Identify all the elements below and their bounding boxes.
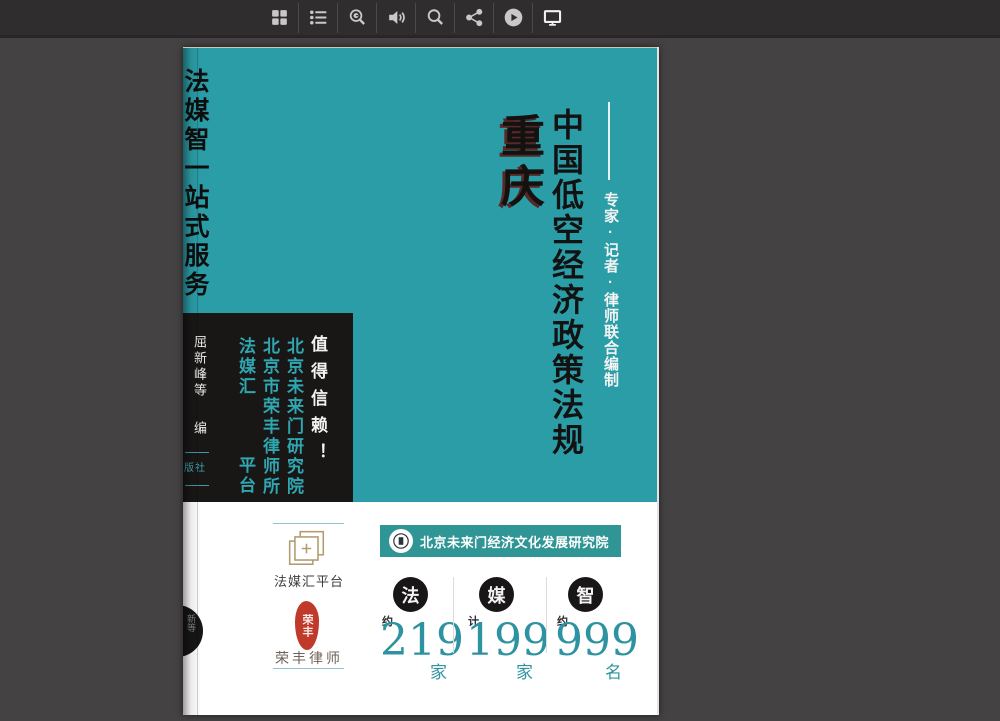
platform-logo-icon xyxy=(286,528,328,570)
stat-badge-media: 媒 xyxy=(479,577,514,612)
cover-black-box: 屈新峰等 编 版社 法媒汇 平台 北京市荣丰律师所 北京未来门研究院 值得信赖！ xyxy=(183,313,353,502)
org-platform-top: 法媒汇 xyxy=(233,337,258,397)
toolbar-button-group xyxy=(260,3,571,33)
stat-unit: 名 xyxy=(605,658,622,683)
stat-divider xyxy=(546,577,547,653)
play-icon[interactable] xyxy=(494,3,532,33)
lawfirm-label: 荣丰律师 xyxy=(265,648,353,668)
stat-block-media: 媒 计 199 家 xyxy=(466,577,539,677)
stat-value: 219 xyxy=(380,619,464,663)
stat-badge-text: 媒 xyxy=(488,582,506,608)
grid-icon[interactable] xyxy=(260,3,298,33)
org-lawfirm: 北京市荣丰律师所 xyxy=(257,337,282,497)
book-page[interactable]: 法媒智一站式服务 重庆 中国低空经济政策法规 专家·记者·律师联合编制 屈新峰等… xyxy=(183,47,659,715)
cover-editors-note: 专家·记者·律师联合编制 xyxy=(600,192,621,388)
publisher-partial-text: 版社 xyxy=(184,459,206,474)
search-history-icon[interactable] xyxy=(338,3,376,33)
toc-list-icon[interactable] xyxy=(299,3,337,33)
cover-left-slogan: 法媒智一站式服务 xyxy=(183,68,213,300)
edge-badge-text: 新等 xyxy=(185,614,198,632)
org-institute: 北京未来门研究院 xyxy=(281,337,306,497)
cover-region-label: 重庆 xyxy=(486,113,550,213)
authors-text: 屈新峰等 xyxy=(190,335,209,399)
institute-logo-icon xyxy=(389,529,413,553)
institute-banner: 北京未来门经济文化发展研究院 xyxy=(380,525,621,557)
stat-block-law: 法 约 219 家 xyxy=(380,577,453,677)
editor-label: 编 xyxy=(190,421,209,434)
institute-banner-text: 北京未来门经济文化发展研究院 xyxy=(420,532,609,551)
tagline-text: 值得信赖！ xyxy=(305,335,330,470)
monitor-icon[interactable] xyxy=(533,3,571,33)
search-icon[interactable] xyxy=(416,3,454,33)
viewer-toolbar xyxy=(0,0,1000,38)
edge-circle-badge: 新等 xyxy=(183,605,203,657)
cover-main-title: 中国低空经济政策法规 xyxy=(543,108,589,458)
lawfirm-seal-icon: 荣丰 xyxy=(295,601,319,650)
org-platform-bottom: 平台 xyxy=(233,456,258,496)
publisher-rule-top xyxy=(185,452,209,453)
share-icon[interactable] xyxy=(455,3,493,33)
book-cover: 法媒智一站式服务 重庆 中国低空经济政策法规 专家·记者·律师联合编制 屈新峰等… xyxy=(183,47,659,502)
seal-text: 荣丰 xyxy=(299,614,315,638)
volume-icon[interactable] xyxy=(377,3,415,33)
editors-divider-line xyxy=(608,102,610,180)
stat-badge-text: 智 xyxy=(577,582,595,608)
stat-value: 999 xyxy=(555,619,639,663)
stat-unit: 家 xyxy=(516,658,533,683)
stat-divider xyxy=(453,577,454,653)
stat-block-智: 智 约 999 名 xyxy=(555,577,628,677)
stat-badge-smart: 智 xyxy=(568,577,603,612)
stat-badge-text: 法 xyxy=(402,582,420,608)
side-rule-bottom xyxy=(273,668,344,669)
stat-unit: 家 xyxy=(430,658,447,683)
stat-badge-law: 法 xyxy=(393,577,428,612)
side-rule-top xyxy=(273,523,344,524)
stat-value: 199 xyxy=(466,619,550,663)
publisher-rule-bottom xyxy=(185,485,209,486)
platform-label: 法媒汇平台 xyxy=(265,571,353,590)
